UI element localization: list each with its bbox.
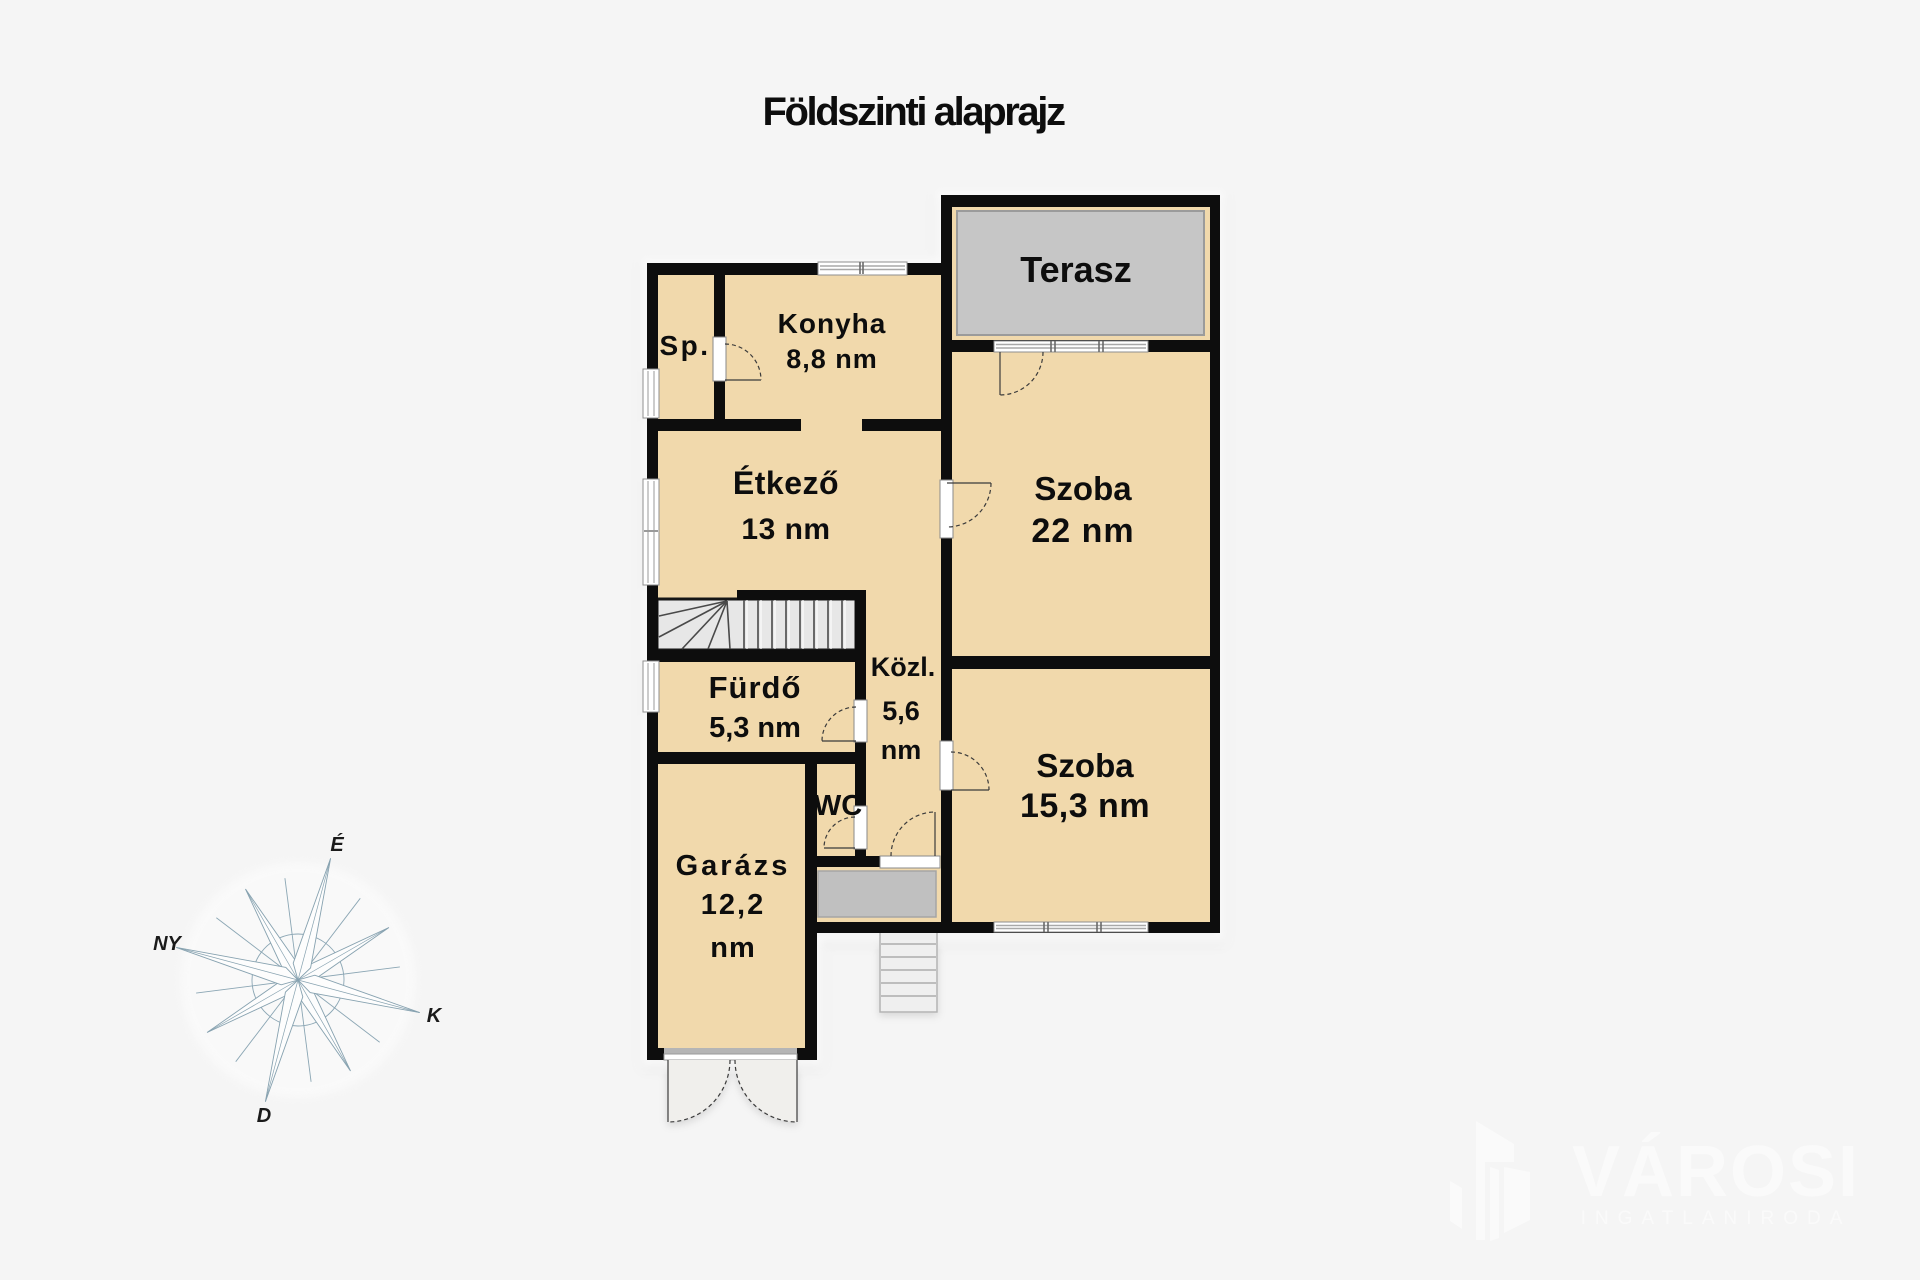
svg-text:D: D: [257, 1105, 271, 1127]
svg-text:Sp.: Sp.: [659, 330, 710, 361]
svg-text:Konyha: Konyha: [778, 308, 887, 339]
svg-text:5,6: 5,6: [882, 696, 920, 726]
svg-text:12,2: 12,2: [701, 889, 765, 921]
svg-text:Közl.: Közl.: [871, 652, 936, 682]
svg-text:Szoba: Szoba: [1034, 470, 1132, 507]
svg-text:22 nm: 22 nm: [1031, 512, 1134, 550]
svg-text:INGATLANIRODA: INGATLANIRODA: [1581, 1208, 1852, 1229]
svg-text:VÁROSI: VÁROSI: [1572, 1132, 1860, 1212]
svg-text:WC: WC: [814, 790, 862, 822]
svg-text:K: K: [427, 1005, 443, 1027]
svg-text:Szoba: Szoba: [1036, 747, 1134, 784]
svg-text:Étkező: Étkező: [733, 465, 839, 501]
svg-text:nm: nm: [881, 735, 922, 765]
svg-text:5,3 nm: 5,3 nm: [709, 712, 801, 744]
svg-text:13 nm: 13 nm: [741, 513, 830, 546]
svg-text:NY: NY: [153, 933, 182, 955]
svg-text:É: É: [330, 833, 344, 856]
svg-text:8,8 nm: 8,8 nm: [786, 344, 878, 374]
svg-text:nm: nm: [710, 932, 756, 964]
svg-text:15,3 nm: 15,3 nm: [1020, 787, 1150, 825]
svg-text:Garázs: Garázs: [676, 850, 791, 882]
svg-text:Földszinti alaprajz: Földszinti alaprajz: [762, 90, 1065, 134]
svg-text:Fürdő: Fürdő: [709, 670, 802, 705]
svg-text:Terasz: Terasz: [1020, 249, 1131, 290]
